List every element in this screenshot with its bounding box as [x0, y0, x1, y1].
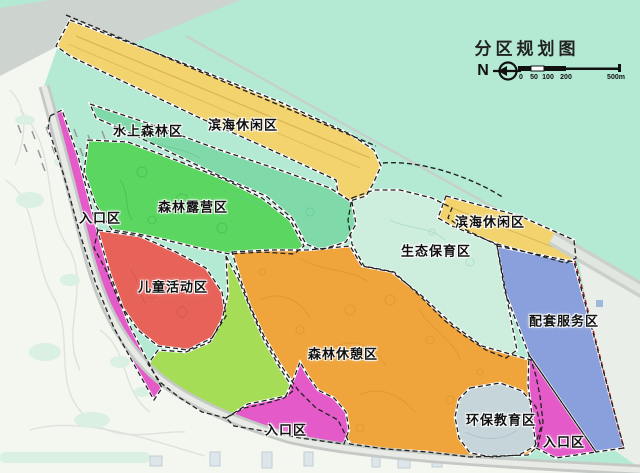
zoning-map: 分区规划图 N 0 50 100 200 500m 滨海休闲区 水上森林区 森林… — [0, 0, 640, 473]
scale-tick-200: 200 — [560, 74, 572, 81]
label-entrance-south: 入口区 — [265, 420, 307, 439]
map-canvas — [0, 0, 640, 473]
scale-tick-50: 50 — [530, 74, 538, 81]
scale-tick-100: 100 — [542, 74, 554, 81]
label-eco-conservation: 生态保育区 — [401, 241, 471, 260]
map-title: 分区规划图 — [475, 35, 580, 60]
label-coastal-leisure-north: 滨海休闲区 — [208, 115, 278, 134]
label-water-forest: 水上森林区 — [113, 121, 183, 140]
label-support-services: 配套服务区 — [529, 311, 599, 330]
north-label: N — [477, 62, 489, 80]
label-coastal-leisure-east: 滨海休闲区 — [455, 212, 525, 231]
label-entrance-southeast: 入口区 — [543, 432, 585, 451]
label-entrance-west: 入口区 — [79, 208, 121, 227]
scale-end-label: 500m — [607, 74, 625, 81]
scale-tick-0: 0 — [519, 74, 523, 81]
label-children-activity: 儿童活动区 — [138, 277, 208, 296]
label-eco-education: 环保教育区 — [466, 410, 536, 429]
east-land-marker — [596, 300, 603, 307]
label-forest-camping: 森林露营区 — [158, 197, 228, 216]
label-forest-recreation: 森林休憩区 — [308, 344, 378, 363]
